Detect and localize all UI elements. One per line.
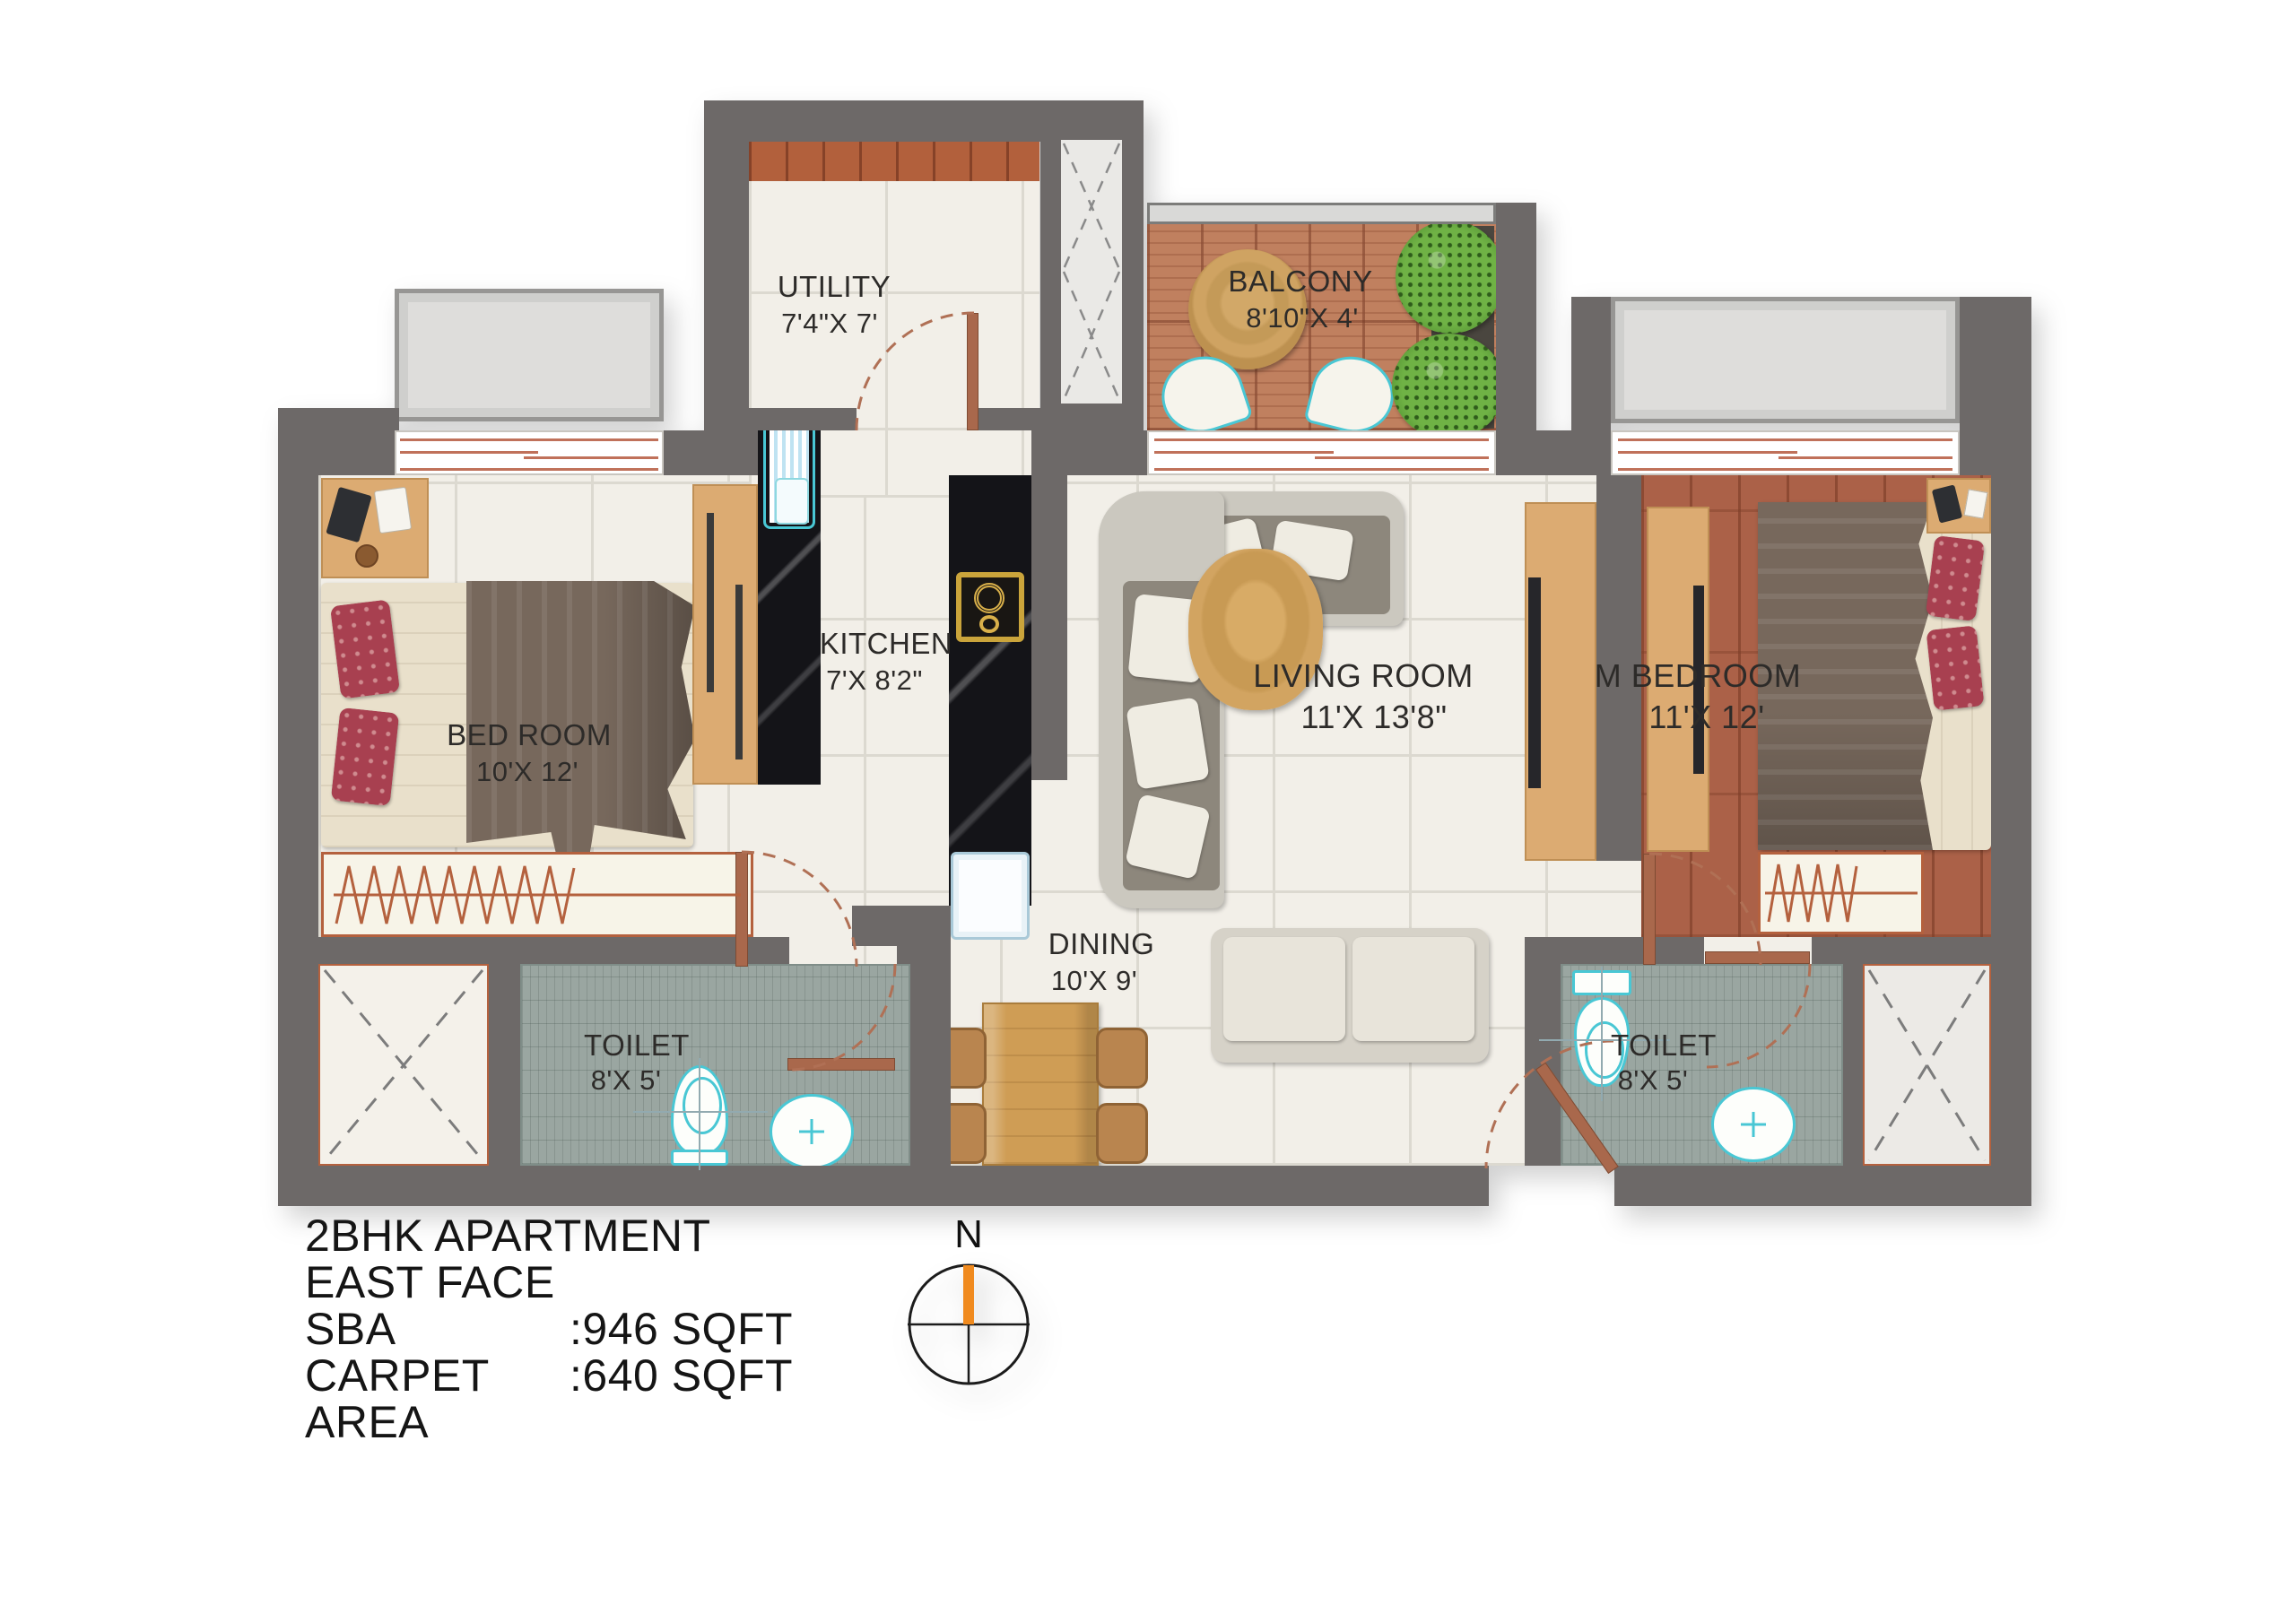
- master-wardrobe: [1758, 852, 1924, 934]
- wall-right-outer: [1991, 475, 2031, 1167]
- shaft-box-right: [1863, 964, 1991, 1166]
- room-dims-dining: 10'X 9': [987, 966, 1202, 996]
- wardrobe-handle: [735, 585, 743, 759]
- room-dims-utility: 7'4"X 7': [722, 308, 937, 339]
- door-leaf-bedroom: [735, 852, 748, 967]
- room-label-balcony: BALCONY: [1193, 265, 1408, 298]
- laptop-icon: [1932, 484, 1962, 523]
- wall-toilet-shaft-divider: [1843, 964, 1863, 1166]
- wall-corner: [278, 408, 399, 475]
- dining-table: [982, 1002, 1099, 1166]
- notebook-icon: [374, 487, 412, 534]
- wall-utility-bottom: [973, 408, 1040, 430]
- door-leaf-toilet-left: [787, 1058, 895, 1071]
- balcony-plant: [1396, 221, 1505, 334]
- wall: [1960, 297, 2031, 475]
- wardrobe-handle: [707, 513, 714, 692]
- sofa-sectional-vertical: [1099, 491, 1224, 908]
- wall-toilet-right-left: [1525, 937, 1561, 1166]
- notebook-icon: [1964, 489, 1988, 518]
- dining-chair: [1096, 1103, 1148, 1164]
- bedroom-wardrobe: [321, 852, 753, 937]
- room-label-utility: UTILITY: [726, 271, 942, 303]
- sofa-two-seater: [1211, 928, 1489, 1063]
- room-dims-living: 11'X 13'8": [1248, 699, 1500, 735]
- balcony-plant: [1392, 334, 1505, 439]
- room-dims-bedroom: 10'X 12': [420, 757, 635, 787]
- room-label-master: M BEDROOM: [1563, 658, 1832, 694]
- plan-sba: SBA :946 SQFT: [305, 1306, 1112, 1352]
- plan-carpet-area: CARPET AREA :640 SQFT: [305, 1352, 1112, 1445]
- tv-icon: [1528, 577, 1541, 788]
- wall-lobby-toilet: [897, 937, 910, 964]
- window-master: [1611, 430, 1960, 475]
- wall-left-outer: [278, 475, 318, 1206]
- wall-living-master: [1596, 430, 1641, 861]
- floor-plan-page: UTILITY 7'4"X 7' BALCONY 8'10"X 4' KITCH…: [0, 0, 2296, 1623]
- carpet-area-label: CARPET AREA: [305, 1352, 570, 1445]
- burner-icon: [974, 583, 1004, 613]
- carpet-area-value: :640 SQFT: [570, 1352, 793, 1445]
- wall: [664, 430, 758, 475]
- balcony-railing: [1147, 203, 1496, 224]
- room-dims-balcony: 8'10"X 4': [1195, 303, 1410, 334]
- plan-facing: EAST FACE: [305, 1259, 1112, 1306]
- plan-title: 2BHK APARTMENT: [305, 1212, 1112, 1259]
- room-dims-kitchen: 7'X 8'2": [767, 665, 982, 696]
- sofa-cushion: [1223, 937, 1345, 1041]
- dining-chair: [1096, 1028, 1148, 1089]
- sink-basin: [775, 478, 809, 525]
- toilet-wc-tank-right: [1572, 970, 1631, 995]
- bed-pillow: [331, 707, 400, 806]
- desk-clock-icon: [355, 544, 378, 568]
- bedroom-window-bay: [395, 289, 664, 421]
- plan-title-text: 2BHK APARTMENT: [305, 1212, 710, 1259]
- room-label-kitchen: KITCHEN: [778, 628, 994, 660]
- room-label-toilet-left: TOILET: [538, 1029, 735, 1062]
- bedroom-desk: [321, 478, 429, 578]
- wall-bottom: [278, 1166, 1489, 1206]
- room-dims-toilet-left: 8'X 5': [527, 1065, 725, 1096]
- title-block: 2BHK APARTMENT EAST FACE SBA :946 SQFT C…: [305, 1212, 1112, 1445]
- plan-facing-text: EAST FACE: [305, 1259, 555, 1306]
- sba-value: :946 SQFT: [570, 1306, 793, 1352]
- room-label-dining: DINING: [994, 928, 1209, 960]
- wall-kitchen-living: [1031, 430, 1067, 780]
- sofa-cushion: [1352, 937, 1474, 1041]
- room-dims-toilet-right: 8'X 5': [1554, 1065, 1752, 1096]
- room-label-bedroom: BED ROOM: [422, 719, 637, 751]
- master-desk: [1926, 478, 1991, 534]
- bed-pillow: [1926, 625, 1984, 710]
- room-dims-master: 11'X 12': [1572, 699, 1841, 735]
- wall: [1496, 203, 1536, 430]
- room-label-living: LIVING ROOM: [1238, 658, 1489, 694]
- laptop-icon: [326, 487, 371, 542]
- wall: [1496, 430, 1611, 475]
- wall-bottom: [1614, 1166, 2031, 1206]
- kitchen-sink: [763, 420, 815, 529]
- sliding-door-balcony: [1147, 430, 1496, 475]
- wall-lobby-toilet: [318, 937, 789, 964]
- wall-utility-bottom: [749, 408, 857, 430]
- master-window-bay: [1611, 297, 1960, 423]
- door-leaf-master: [1643, 854, 1656, 965]
- shaft-box-top: [1061, 140, 1122, 404]
- room-label-toilet-right: TOILET: [1565, 1029, 1762, 1062]
- door-leaf-utility: [967, 313, 978, 430]
- bedroom-sliding-wardrobe: [692, 484, 758, 785]
- toilet-basin-left: [770, 1094, 854, 1169]
- window-bedroom: [395, 430, 664, 475]
- wall-master-bottom: [1812, 937, 2031, 964]
- sofa-cushion: [1126, 697, 1209, 789]
- door-leaf-toilet-right: [1705, 951, 1810, 964]
- bed-pillow: [1926, 535, 1986, 621]
- toilet-basin-right: [1711, 1087, 1796, 1162]
- kitchen-fridge: [951, 852, 1030, 940]
- bed-pillow: [330, 599, 400, 699]
- wall-shaft-divider: [489, 964, 520, 1166]
- sba-label: SBA: [305, 1306, 570, 1352]
- utility-terracotta-strip: [749, 142, 1039, 181]
- toilet-wc-tank-left: [671, 1150, 728, 1166]
- wall: [1571, 297, 1611, 430]
- shaft-box-left: [318, 964, 489, 1166]
- wall: [704, 100, 749, 430]
